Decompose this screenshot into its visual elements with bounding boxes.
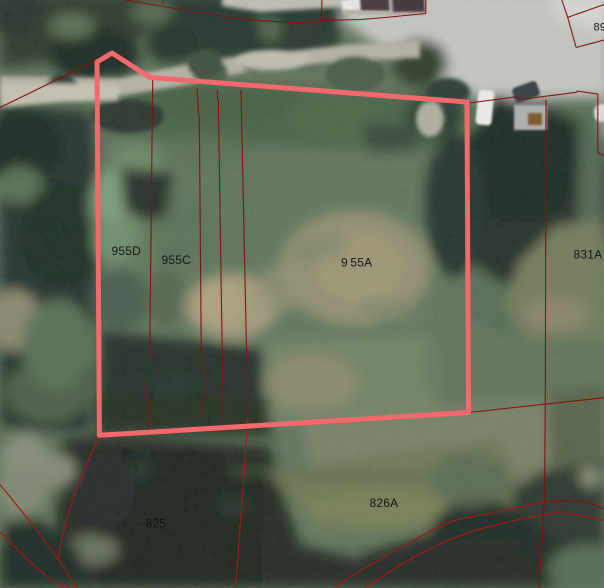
svg-text:955C: 955C bbox=[162, 253, 192, 267]
svg-text:826A: 826A bbox=[370, 496, 399, 510]
svg-text:825: 825 bbox=[146, 517, 167, 531]
svg-text:955D: 955D bbox=[112, 244, 142, 258]
svg-text:831A: 831A bbox=[574, 248, 603, 262]
svg-text:895: 895 bbox=[594, 22, 604, 34]
svg-text:955A: 955A bbox=[341, 256, 372, 270]
